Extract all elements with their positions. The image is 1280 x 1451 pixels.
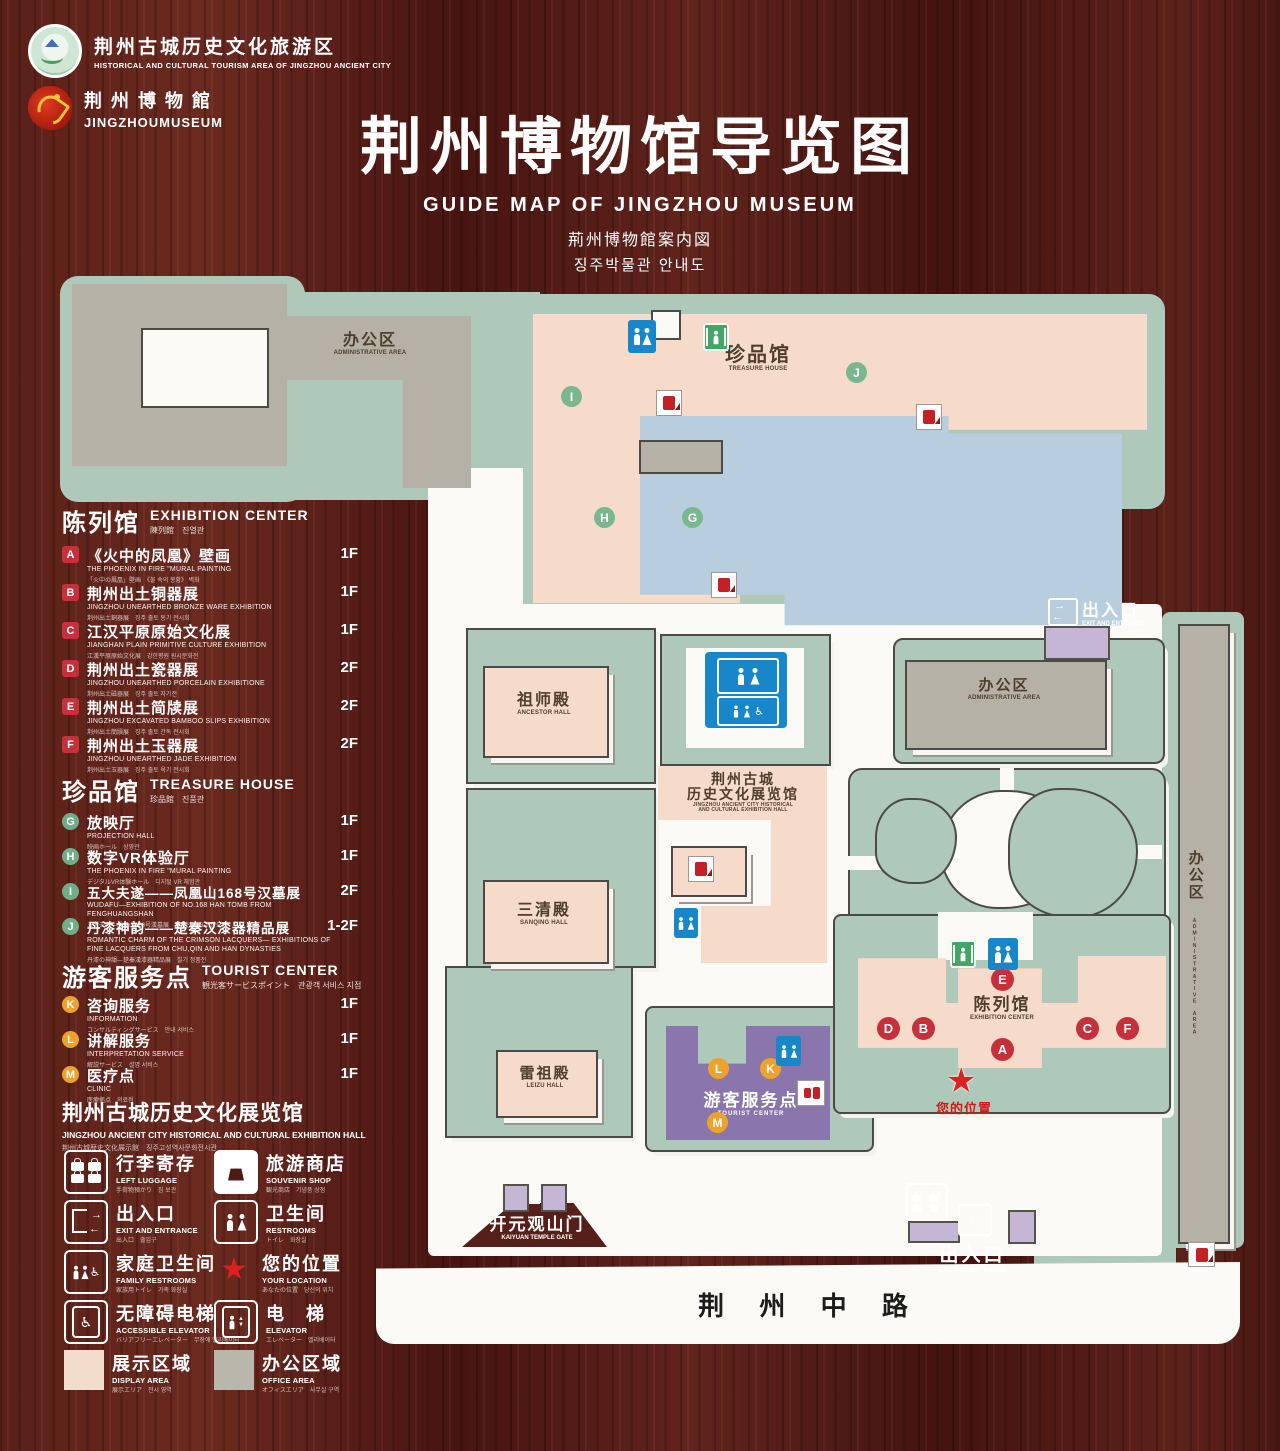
tourism-area-logo: 荆州古城历史文化旅游区 HISTORICAL AND CULTURAL TOUR… xyxy=(28,24,391,78)
legend-left-luggage: 行李寄存LEFT LUGGAGE手荷物預かり 짐 보관 xyxy=(64,1150,196,1194)
kaiyuan-gate-label: 开元观山门 KAIYUAN TEMPLE GATE xyxy=(462,1210,612,1241)
your-location-label: 您的位置 xyxy=(922,1098,1006,1117)
family-restrooms-icon: ♿ xyxy=(64,1250,108,1294)
legend-family-restrooms: ♿ 家庭卫生间FAMILY RESTROOMS家族用トイレ 가족 화장실 xyxy=(64,1250,216,1294)
legend-display-area: 展示区域DISPLAY AREA展示エリア 전시 영역 xyxy=(64,1350,192,1394)
legend-section-tourist-center: 游客服务点 TOURIST CENTER観光客サービスポイント 관광객 서비스 … xyxy=(62,958,361,993)
garden-island-east xyxy=(1008,788,1138,918)
elevator-icon-red xyxy=(656,390,682,416)
legend-section-exhibition-center: 陈列馆 EXHIBITION CENTER陳列館 진열관 xyxy=(62,503,309,538)
legend-hall-title: 荆州古城历史文化展览馆 JINGZHOU ANCIENT CITY HISTOR… xyxy=(62,1097,392,1153)
exit-entrance-icon: → ← xyxy=(64,1200,108,1244)
legend-item-H: H 数字VR体验厅 THE PHOENIX IN FIRE "MURAL PAI… xyxy=(62,847,358,886)
elevator-icon: ▲▼ xyxy=(214,1300,258,1344)
exit-entrance-icon: → ← xyxy=(1048,598,1078,626)
gate-northeast xyxy=(1044,626,1110,660)
gate-tower-west xyxy=(503,1184,529,1212)
legend-item-L: L 讲解服务 INTERPRETATION SERVICE 解説サービス 설명 … xyxy=(62,1030,358,1069)
museum-logo: 荆 州 博 物 館 JINGZHOUMUSEUM xyxy=(28,86,223,130)
legend-restrooms: 卫生间RESTROOMSトイレ 화장실 xyxy=(214,1200,326,1244)
exit-entrance-icon: ↑↓ xyxy=(958,1204,992,1236)
legend-elevator: ▲▼ 电 梯ELEVATORエレベーター 엘리베이터 xyxy=(214,1300,336,1344)
office-area-swatch xyxy=(214,1350,254,1390)
admin-northwest-label: 办公区 ADMINISTRATIVE AREA xyxy=(300,332,440,356)
legend-souvenir-shop: 旅游商店SOUVENIR SHOP観光商店 기념품 상점 xyxy=(214,1150,346,1194)
pagoda-icon xyxy=(45,39,59,47)
restrooms-icon xyxy=(988,938,1018,970)
your-location-icon: ★ xyxy=(946,1064,976,1098)
path-connector xyxy=(428,468,523,618)
elevator-icon xyxy=(703,323,729,351)
admin-northwest-courtyard xyxy=(141,328,269,408)
family-restrooms-icon: ♿ xyxy=(717,696,779,726)
poster-title-block: 荆州博物馆导览图 GUIDE MAP OF JINGZHOU MUSEUM 荊州… xyxy=(250,96,1030,275)
legend-item-J: J 丹漆神韵——楚秦汉漆器精品展 ROMANTIC CHARM OF THE C… xyxy=(62,917,358,964)
poster-title-kr: 징주박물관 안내도 xyxy=(250,254,1030,275)
elevator-icon-red xyxy=(916,404,942,430)
restrooms-icon xyxy=(628,320,656,353)
restrooms-icon xyxy=(776,1036,801,1066)
admin-east-strip-label: 办公区 ADMINISTRATIVE AREA xyxy=(1186,850,1204,1036)
gate-passage xyxy=(528,1178,540,1204)
map-marker-G: G xyxy=(682,507,703,528)
legend-item-E: E 荆州出土简牍展 JINGZHOU EXCAVATED BAMBOO SLIP… xyxy=(62,697,358,736)
elevator-icon-red xyxy=(688,856,714,882)
exit-northeast-label: 出入口 EXIT AND ENTRANCE xyxy=(1082,596,1192,627)
map-marker-H: H xyxy=(594,507,615,528)
garden-island-west xyxy=(875,798,957,884)
restrooms-icon xyxy=(717,658,779,694)
map-marker-E: E xyxy=(991,968,1014,991)
history-hall-label: 荆州古城 历史文化展览馆 JINGZHOU ANCIENT CITY HISTO… xyxy=(672,772,814,814)
tourism-area-logo-icon xyxy=(28,24,82,78)
tourism-area-name-en: HISTORICAL AND CULTURAL TOURISM AREA OF … xyxy=(94,61,391,70)
map-marker-M: M xyxy=(707,1112,728,1133)
exit-south-label: 出入口 EXIT AND ENTRANCE xyxy=(900,1240,1045,1274)
phoenix-head-icon xyxy=(54,94,60,100)
guide-map-poster: { "header": { "logo1_cn": "荆州古城历史文化旅游区",… xyxy=(0,0,1280,1451)
legend-exit-entrance: → ← 出入口EXIT AND ENTRANCE出入口 출입구 xyxy=(64,1200,198,1244)
poster-title-cn: 荆州博物馆导览图 xyxy=(250,96,1030,186)
legend-item-K: K 咨询服务 INFORMATION コンサルティングサービス 안내 서비스 1… xyxy=(62,995,358,1034)
legend-item-G: G 放映厅 PROJECTION HALL 映画ホール 상영관 1F xyxy=(62,812,358,851)
map-marker-I: I xyxy=(561,386,582,407)
exhibition-center-label: 陈列馆 EXHIBITION CENTER xyxy=(932,996,1072,1021)
elevator-icon-red xyxy=(1188,1242,1215,1267)
legend-your-location: ★ 您的位置YOUR LOCATIONあなたの位置 당신의 위치 xyxy=(214,1250,342,1294)
legend-item-B: B 荆州出土铜器展 JINGZHOU UNEARTHED BRONZE WARE… xyxy=(62,583,358,622)
legend-item-A: A 《火中的凤凰》壁画 THE PHOENIX IN FIRE "MURAL P… xyxy=(62,545,358,584)
left-luggage-icon xyxy=(64,1150,108,1194)
map-marker-A: A xyxy=(991,1038,1014,1061)
museum-name-cn: 荆 州 博 物 館 xyxy=(84,87,223,113)
elevator-icon xyxy=(950,940,976,968)
map-marker-L: L xyxy=(708,1058,729,1079)
road-label: 荆 州 中 路 xyxy=(560,1286,1060,1323)
legend-section-treasure-house: 珍品馆 TREASURE HOUSE珍品館 진품관 xyxy=(62,772,295,807)
display-area-swatch xyxy=(64,1350,104,1390)
map-marker-C: C xyxy=(1076,1017,1099,1040)
legend-office-area: 办公区域OFFICE AREAオフィスエリア 사무실 구역 xyxy=(214,1350,342,1394)
map-marker-B: B xyxy=(912,1017,935,1040)
your-location-icon: ★ xyxy=(214,1250,254,1290)
sanqing-hall-label: 三清殿 SANQING HALL xyxy=(483,902,605,926)
ancestor-hall-label: 祖师殿 ANCESTOR HALL xyxy=(483,692,605,716)
legend-item-D: D 荆州出土瓷器展 JINGZHOU UNEARTHED PORCELAIN E… xyxy=(62,659,358,698)
gate-south-east xyxy=(1008,1210,1036,1244)
museum-logo-icon xyxy=(28,86,72,130)
phoenix-icon xyxy=(32,91,71,130)
accessible-elevator-icon: ♿ xyxy=(64,1300,108,1344)
poster-title-en: GUIDE MAP OF JINGZHOU MUSEUM xyxy=(250,194,1030,217)
leizu-hall-label: 雷祖殿 LEIZU HALL xyxy=(496,1066,594,1089)
tourism-area-name-cn: 荆州古城历史文化旅游区 xyxy=(94,32,391,59)
building-admin-east xyxy=(905,660,1107,750)
poster-title-jp: 荊州博物館案内図 xyxy=(250,226,1030,250)
admin-east-label: 办公区 ADMINISTRATIVE AREA xyxy=(934,678,1074,701)
map-marker-J: J xyxy=(846,362,867,383)
family-restrooms-sign: ♿ xyxy=(705,652,787,728)
legend-item-F: F 荆州出土玉器展 JINGZHOU UNEARTHED JADE EXHIBI… xyxy=(62,735,358,774)
map-marker-F: F xyxy=(1116,1017,1139,1040)
restrooms-icon xyxy=(214,1200,258,1244)
map-marker-D: D xyxy=(877,1017,900,1040)
gate-tower-east xyxy=(541,1184,567,1212)
legend-item-C: C 江汉平原原始文化展 JIANGHAN PLAIN PRIMITIVE CUL… xyxy=(62,621,358,660)
elevator-icon-red xyxy=(711,572,737,598)
pond-terrace xyxy=(639,440,723,474)
left-luggage-icon xyxy=(906,1183,948,1223)
laurel-icon xyxy=(41,51,63,64)
left-luggage-icon-red xyxy=(797,1080,825,1106)
souvenir-shop-icon xyxy=(214,1150,258,1194)
restrooms-icon xyxy=(674,908,698,938)
museum-name-en: JINGZHOUMUSEUM xyxy=(84,115,223,130)
